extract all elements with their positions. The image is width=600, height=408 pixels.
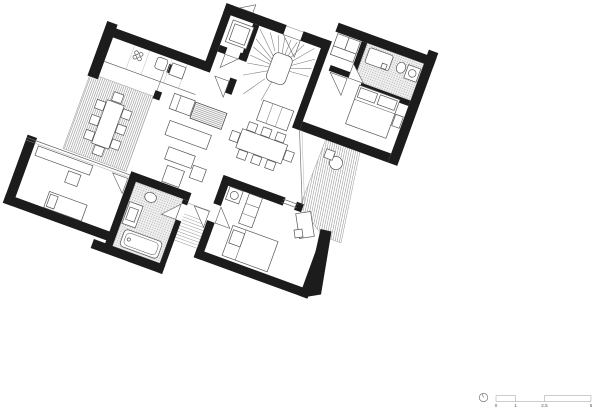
svg-text:1: 1 bbox=[514, 403, 517, 408]
svg-text:5: 5 bbox=[590, 403, 593, 408]
svg-text:2.5: 2.5 bbox=[541, 403, 548, 408]
svg-text:0: 0 bbox=[495, 403, 498, 408]
